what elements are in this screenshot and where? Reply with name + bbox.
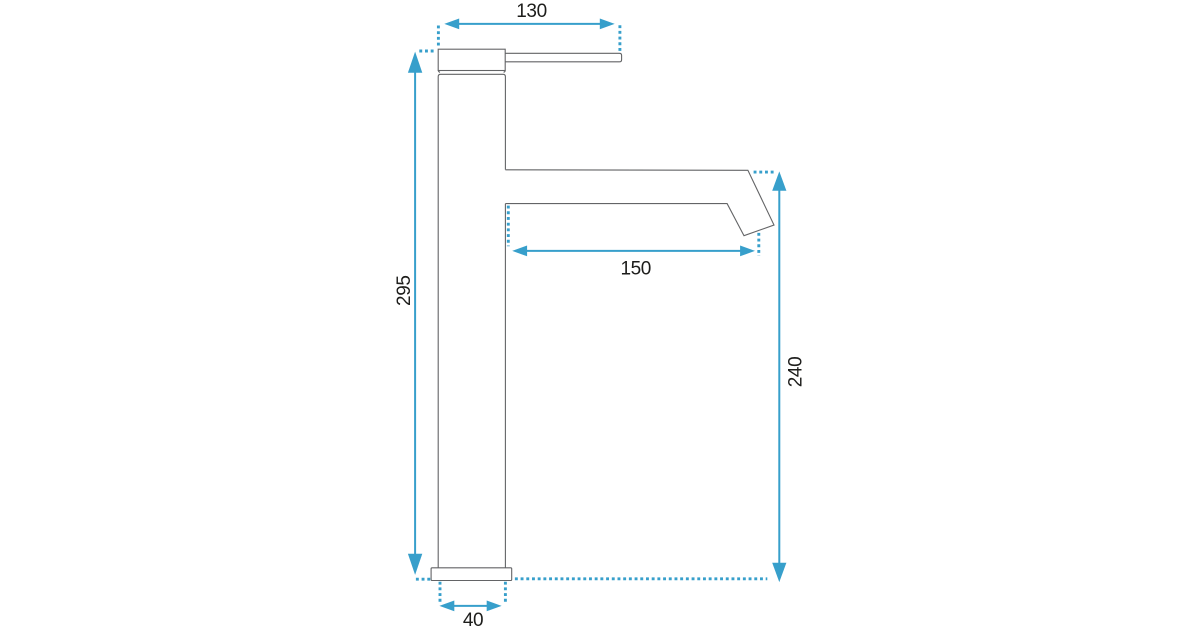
svg-text:40: 40	[463, 610, 483, 630]
svg-text:295: 295	[394, 275, 415, 306]
svg-text:130: 130	[516, 1, 547, 22]
svg-text:150: 150	[620, 258, 651, 279]
svg-text:240: 240	[786, 357, 807, 388]
